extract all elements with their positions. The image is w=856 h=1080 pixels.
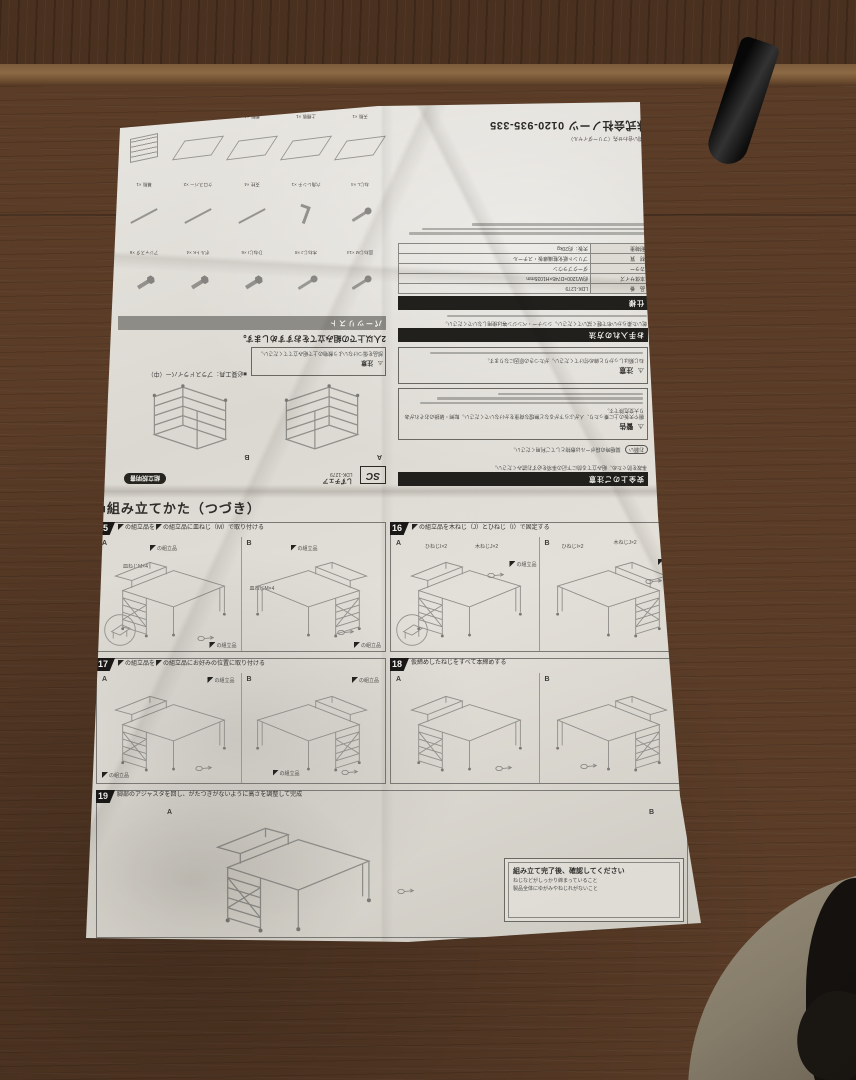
parts-grid: 皿ねじM ×14 木ねじJ ×8 ひねじI ×6 ボルトK ×4 アジャスタ ×… bbox=[118, 112, 386, 314]
spec-value: ダークブラウン bbox=[399, 264, 591, 274]
part-item: ひねじI ×6 bbox=[226, 248, 278, 314]
part-callout: の組立品 bbox=[206, 677, 234, 684]
part-callout: の組立品 bbox=[272, 770, 300, 777]
completion-check-inner: 組み立て完了後、確認してください ねじなどがしっかり締まっていること 製品全体に… bbox=[508, 862, 680, 918]
spec-row: 材 質 プリント紙化粧繊維板・スチール bbox=[399, 254, 648, 264]
part-callout: の組立品 bbox=[351, 677, 379, 684]
part-item: ねじL ×4 bbox=[334, 180, 386, 246]
step-instruction: の組立品をの組立品に皿ねじ（M）で取り付ける bbox=[117, 524, 383, 533]
board-icon bbox=[280, 135, 332, 160]
fine-print-line bbox=[447, 315, 647, 318]
assembly-flag-icon bbox=[352, 677, 358, 683]
part-item: 天板 ×1 bbox=[334, 112, 386, 178]
part-item: 支柱 ×4 bbox=[226, 180, 278, 246]
shelf-unit-drawing bbox=[272, 380, 372, 456]
step-number: 17 bbox=[96, 658, 115, 671]
brand-row: SC しずチェア LDK-1279 組立説明書 bbox=[118, 466, 386, 486]
pane-a: A ひねじI×2 木ねじJ×2 の組立品 bbox=[391, 537, 539, 651]
screwdriver-icon bbox=[495, 764, 513, 773]
part-callout: の組立品 bbox=[101, 772, 129, 779]
assembly-flag-icon bbox=[118, 660, 124, 666]
spec-table: 品 番 LDK-1279 本体サイズ 約W1200×D745×H1035mm カ… bbox=[398, 243, 648, 294]
frame-diagrams-row: A B bbox=[118, 378, 386, 462]
part-item: 木ねじJ ×8 bbox=[280, 248, 332, 314]
two-person-note: 2人以上での組み立てをおすすめします。 bbox=[118, 334, 386, 345]
assembly-heading: ■組み立てかた（つづき） bbox=[98, 498, 261, 517]
screw-callout: ひねじI×2 bbox=[425, 543, 447, 550]
screw-callout: 木ねじJ×2 bbox=[475, 543, 498, 550]
board-icon bbox=[226, 135, 278, 160]
step-instruction: の組立品を木ねじ（J）とひねじ（I）で固定する bbox=[411, 524, 685, 533]
screwdriver-icon bbox=[337, 628, 355, 637]
assembly-flag-icon bbox=[354, 642, 360, 648]
screwdriver-icon bbox=[195, 764, 213, 773]
assembly-flag-icon bbox=[509, 561, 515, 567]
spec-row: 耐荷重 天板：約20kg bbox=[399, 244, 648, 254]
assembly-flag-icon bbox=[209, 642, 215, 648]
spec-value: プリント紙化粧繊維板・スチール bbox=[399, 254, 591, 264]
sheet-top-rotated: 安全上のご注意 事故を防ぐため、組み立てる前に下記の事項を必ずお読みください。 … bbox=[118, 102, 648, 486]
check-item: 製品全体にゆがみやねじれがないこと bbox=[513, 886, 675, 894]
step-number: 19 bbox=[96, 790, 115, 803]
fine-print-line bbox=[472, 224, 647, 227]
crossbar-icon bbox=[184, 208, 211, 224]
screw-icon bbox=[352, 278, 369, 290]
step-instruction: 仮締めしたねじをすべて本締めする bbox=[411, 660, 685, 668]
care-text: 乾いた柔らかい布で軽く拭いてください。シンナー・ベンジン等は使用しないでください… bbox=[399, 320, 647, 327]
desk-line-drawing bbox=[254, 688, 372, 772]
warning-icon-label: ⚠ bbox=[638, 423, 644, 430]
part-item: 上棚板 ×1 bbox=[280, 112, 332, 178]
desk-line-drawing bbox=[110, 688, 228, 772]
pane-letter-b: B bbox=[649, 809, 654, 816]
pre-caution-box: ⚠ 注意 部品を傷つけないよう敷物の上で組み立ててください。 bbox=[251, 348, 386, 377]
brand-name: しずチェア bbox=[323, 477, 353, 486]
part-item: 棚板 ×4 bbox=[226, 112, 278, 178]
frame-diagram-a: A bbox=[258, 378, 386, 462]
panel-letter: A bbox=[377, 453, 382, 460]
step-instruction: 脚部のアジャスタを回し、がたつきがないように高さを調整して完成 bbox=[117, 792, 685, 800]
spec-row: 品 番 LDK-1279 bbox=[399, 284, 648, 294]
desk-line-drawing-large bbox=[207, 817, 377, 933]
contact-label: お問い合わせ先（フリーダイヤル） bbox=[398, 135, 648, 142]
request-label: お願い bbox=[625, 446, 648, 455]
spec-value: 天板：約20kg bbox=[399, 244, 591, 254]
sheet-bottom: ■組み立てかた（つづき） 15 の組立品をの組立品に皿ねじ（M）で取り付ける A… bbox=[96, 492, 688, 938]
caution-box: ⚠ 注意 ねじ類はしっかりと締め付けてください。がたつきの原因になります。 bbox=[398, 347, 648, 384]
pre-caution-icon: ⚠ bbox=[378, 359, 383, 365]
contact-block: お問い合わせ先（フリーダイヤル） 株式会社ノーツ 0120-935-335 bbox=[398, 119, 648, 142]
part-item: アジャスタ ×6 bbox=[118, 248, 170, 314]
pane-b: B の組立品 皿ねじM×4 の組立品 bbox=[241, 537, 386, 651]
desk-line-drawing bbox=[554, 554, 672, 638]
screwdriver-icon bbox=[341, 768, 359, 777]
adjuster-icon bbox=[137, 278, 151, 289]
assembly-flag-icon bbox=[273, 770, 279, 776]
step-number: 16 bbox=[390, 522, 409, 535]
spec-banner: 仕様 bbox=[398, 296, 648, 310]
step-number: 18 bbox=[390, 658, 409, 671]
warning-box: ⚠ 警告 棚や天板の上に乗ったり、人がぶら下がるなど無理な荷重をかけないでくださ… bbox=[398, 388, 648, 441]
caution-icon-label: ⚠ bbox=[638, 366, 644, 373]
caution-label: 注意 bbox=[619, 366, 633, 373]
screwdriver-icon bbox=[487, 571, 505, 580]
check-item: ねじなどがしっかり締まっていること bbox=[513, 878, 675, 886]
screwdriver-icon bbox=[645, 577, 663, 586]
step-17-box: 17 の組立品をの組立品にお好みの位置に取り付ける A の組立品 の組立品 B … bbox=[96, 658, 386, 784]
side-board-icon bbox=[172, 135, 224, 160]
panel-letter: B bbox=[244, 453, 249, 460]
part-callout: の組立品 bbox=[353, 642, 381, 649]
step-panes: A の組立品 の組立品 B の組立品 の組立品 bbox=[97, 673, 385, 783]
spec-value: 約W1200×D745×H1035mm bbox=[399, 274, 591, 284]
detail-circle-drawing bbox=[395, 613, 429, 647]
bolt-icon bbox=[191, 278, 205, 289]
pane-b: B の組立品 の組立品 bbox=[241, 673, 386, 783]
assembly-flag-icon bbox=[207, 677, 213, 683]
assembly-flag-icon bbox=[102, 772, 108, 778]
request-note: 開梱時の段ボールは敷物としてご利用ください。 bbox=[511, 447, 621, 453]
step-18-box: 18 仮締めしたねじをすべて本締めする A B bbox=[390, 658, 688, 784]
fine-print-line bbox=[420, 402, 643, 405]
part-callout: の組立品 bbox=[149, 545, 177, 552]
board-icon bbox=[334, 135, 386, 160]
fine-print-line bbox=[422, 228, 647, 231]
bolt-icon bbox=[245, 278, 259, 289]
spec-label: 耐荷重 bbox=[591, 244, 648, 254]
pre-caution-label: 注意 bbox=[361, 359, 373, 365]
assembly-flag-icon bbox=[118, 524, 124, 530]
manual-badge: 組立説明書 bbox=[124, 473, 166, 484]
part-callout: の組立品 bbox=[290, 545, 318, 552]
part-item: ボルトK ×4 bbox=[172, 248, 224, 314]
fine-print-line bbox=[410, 233, 648, 236]
care-banner: お手入れの方法 bbox=[398, 328, 648, 342]
warning-label: 警告 bbox=[619, 423, 633, 430]
spec-value: LDK-1279 bbox=[399, 284, 591, 294]
fine-print-line bbox=[498, 393, 643, 396]
assembly-flag-icon bbox=[156, 660, 162, 666]
tools-row: ⚠ 注意 部品を傷つけないよう敷物の上で組み立ててください。 ■必要工具：プラス… bbox=[118, 348, 386, 377]
step-panes: A B bbox=[391, 673, 687, 783]
step-16-box: 16 の組立品を木ねじ（J）とひねじ（I）で固定する A ひねじI×2 木ねじJ… bbox=[390, 522, 688, 652]
brand-text-block: しずチェア LDK-1279 bbox=[323, 471, 353, 486]
spec-row: カラー ダークブラウン bbox=[399, 264, 648, 274]
top-right-column: SC しずチェア LDK-1279 組立説明書 A B bbox=[118, 112, 386, 487]
step-panes: A ひねじI×2 木ねじJ×2 の組立品 B ひねじI×2 木ねじJ×2 の組立… bbox=[391, 537, 687, 651]
part-callout: の組立品 bbox=[208, 642, 236, 649]
spec-label: 本体サイズ bbox=[591, 274, 648, 284]
fine-print-line bbox=[437, 398, 643, 401]
spec-row: 本体サイズ 約W1200×D745×H1035mm bbox=[399, 274, 648, 284]
desk-line-drawing bbox=[554, 688, 672, 772]
spec-label: 品 番 bbox=[591, 284, 648, 294]
pre-caution-text: 部品を傷つけないよう敷物の上で組み立ててください。 bbox=[254, 350, 383, 357]
company-phone: 株式会社ノーツ 0120-935-335 bbox=[398, 119, 648, 135]
warning-text: 棚や天板の上に乗ったり、人がぶら下がるなど無理な荷重をかけないでください。転倒・… bbox=[402, 407, 644, 420]
step-15-box: 15 の組立品をの組立品に皿ねじ（M）で取り付ける A の組立品 皿ねじM×4 … bbox=[96, 522, 386, 652]
request-row: お願い 開梱時の段ボールは敷物としてご利用ください。 bbox=[398, 444, 648, 462]
spec-label: カラー bbox=[591, 264, 648, 274]
fine-print-line bbox=[430, 352, 643, 355]
screw-icon bbox=[298, 278, 315, 290]
assembly-flag-icon bbox=[412, 524, 418, 530]
screw-callout: ひねじI×2 bbox=[562, 543, 584, 550]
pane-a: A の組立品 皿ねじM×4 の組立品 bbox=[97, 537, 241, 651]
tools-note: ■必要工具：プラスドライバー（中） bbox=[118, 348, 247, 377]
completion-check-box: 組み立て完了後、確認してください ねじなどがしっかり締まっていること 製品全体に… bbox=[504, 858, 684, 922]
assembly-flag-icon bbox=[291, 545, 297, 551]
assembly-flag-icon bbox=[150, 545, 156, 551]
frame-diagram-b: B bbox=[126, 378, 254, 462]
check-title: 組み立て完了後、確認してください bbox=[513, 866, 675, 876]
pane-a: A の組立品 の組立品 bbox=[97, 673, 241, 783]
safety-note: 事故を防ぐため、組み立てる前に下記の事項を必ずお読みください。 bbox=[399, 464, 647, 471]
top-left-column: 安全上のご注意 事故を防ぐため、組み立てる前に下記の事項を必ずお読みください。 … bbox=[398, 222, 648, 487]
pane-a: A bbox=[391, 673, 539, 783]
hex-wrench-icon bbox=[302, 208, 310, 224]
leg-frame-icon bbox=[130, 133, 158, 163]
brand-logo: SC bbox=[360, 466, 386, 484]
shelf-unit-drawing bbox=[140, 380, 240, 456]
step-panes: A の組立品 皿ねじM×4 の組立品 B の組立品 皿ねじM×4 bbox=[97, 537, 385, 651]
part-item: クロスバー ×2 bbox=[172, 180, 224, 246]
screwdriver-icon bbox=[397, 887, 415, 896]
step-instruction: の組立品をの組立品にお好みの位置に取り付ける bbox=[117, 660, 383, 669]
photo-scene: 安全上のご注意 事故を防ぐため、組み立てる前に下記の事項を必ずお読みください。 … bbox=[0, 0, 856, 1080]
desk-line-drawing bbox=[254, 554, 372, 638]
parts-list-banner: パーツリスト bbox=[118, 317, 386, 331]
screwdriver-icon bbox=[580, 762, 598, 771]
pole-icon bbox=[238, 208, 265, 224]
part-item: 皿ねじM ×14 bbox=[334, 248, 386, 314]
rail-icon bbox=[130, 208, 157, 224]
part-callout: の組立品 bbox=[508, 561, 536, 568]
spec-label: 材 質 bbox=[591, 254, 648, 264]
assembly-flag-icon bbox=[156, 524, 162, 530]
pane-letter-a: A bbox=[167, 809, 172, 816]
instruction-sheet: 安全上のご注意 事故を防ぐため、組み立てる前に下記の事項を必ずお読みください。 … bbox=[78, 96, 708, 948]
screw-icon bbox=[352, 210, 369, 222]
desk-line-drawing bbox=[406, 688, 524, 772]
pane-b: B bbox=[539, 673, 688, 783]
wood-wall-panel bbox=[0, 0, 856, 64]
safety-banner: 安全上のご注意 bbox=[398, 472, 648, 486]
screw-callout: 木ねじJ×2 bbox=[614, 539, 637, 546]
part-item: 幕板 ×1 bbox=[118, 180, 170, 246]
part-item: 六角レンチ ×1 bbox=[280, 180, 332, 246]
caution-text: ねじ類はしっかりと締め付けてください。がたつきの原因になります。 bbox=[402, 357, 644, 364]
detail-circle-drawing bbox=[103, 613, 137, 647]
